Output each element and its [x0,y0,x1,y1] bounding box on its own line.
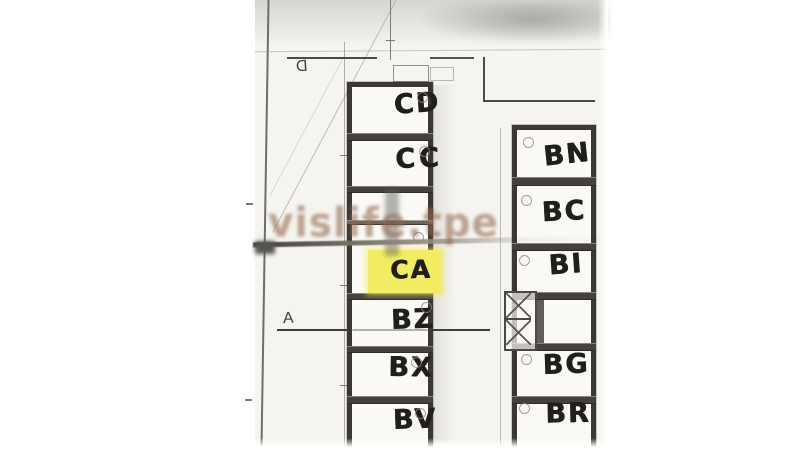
shaft-hatch-icon [504,291,537,351]
room-label-bc: BC [528,194,600,229]
room-label-bv: BV [379,403,450,436]
inner-wall [536,300,544,343]
room-label-br: BR [533,397,604,429]
wall-divider [347,293,433,300]
room-marker-icon [419,146,430,157]
room-label-bi: BI [530,247,602,283]
section-marker-d: D [295,58,308,77]
room-label-bz: BZ [377,303,448,336]
tick-mark [245,399,252,401]
watermark: vislife.tpe [268,199,536,254]
guide-line-vertical [500,128,501,448]
room-label-bx: BX [376,351,447,383]
room-label-cd: CD [381,86,453,122]
x-hatch-icon [506,320,531,345]
plan-detail-box [430,67,454,81]
centerline-vertical [390,0,391,60]
room-label-cc: CC [383,142,454,175]
dimension-line [430,57,474,59]
room-marker-icon [411,357,422,368]
room-marker-icon [519,403,530,414]
wall-divider [512,177,596,186]
tick-mark [386,40,395,41]
plan-detail-box [393,65,429,82]
tick-mark [246,203,253,205]
scanned-floor-plan: D A CD CC CA BZ BX BV BN BC BI BG BR [0,0,800,450]
x-hatch-icon [506,293,531,320]
dimension-line [483,57,485,101]
room-marker-icon [523,137,534,148]
section-marker-a: A [283,310,294,328]
room-marker-icon [421,302,432,313]
room-label-ca: CA [376,254,446,284]
scan-edge-fade [255,438,608,450]
room-marker-icon [417,92,428,103]
room-marker-icon [415,408,426,419]
room-marker-icon [519,255,530,266]
wall-divider [347,133,433,141]
room-marker-icon [521,354,532,365]
dimension-line [483,100,595,102]
scan-edge-fade [598,0,608,450]
scanner-shadow-top-right [420,2,608,44]
room-label-bg: BG [530,348,601,381]
